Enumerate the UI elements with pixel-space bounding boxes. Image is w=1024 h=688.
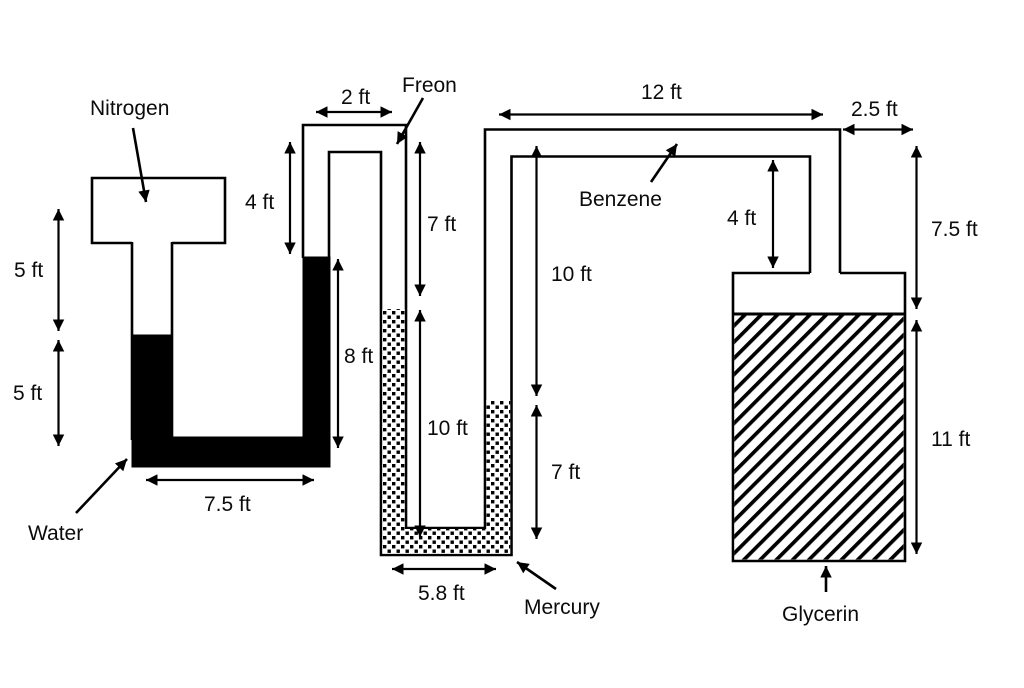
glycerin-fill xyxy=(734,314,903,560)
dim-glycerin-depth-label: 11 ft xyxy=(931,428,970,451)
freon-label: Freon xyxy=(402,74,457,97)
dim-freon-column-label: 7 ft xyxy=(427,213,456,236)
dim-benzene-pipe-run-label: 12 ft xyxy=(641,81,682,104)
dim-water-right-column-label: 8 ft xyxy=(344,345,373,368)
dim-pipe-to-glycerin-surface-label: 7.5 ft xyxy=(931,218,978,241)
mercury-pointer-arrow xyxy=(517,562,556,589)
nitrogen-pointer-arrow xyxy=(133,128,146,202)
nitrogen-label: Nitrogen xyxy=(90,97,169,120)
water-label: Water xyxy=(28,522,83,545)
diagram-svg: Nitrogen Water Freon Mercury Benzene Gly… xyxy=(0,0,1024,688)
water-fill xyxy=(132,257,330,467)
dim-benzene-lower-column-label: 7 ft xyxy=(551,461,580,484)
benzene-label: Benzene xyxy=(579,188,662,211)
freon-pointer-arrow xyxy=(397,98,423,144)
dim-tank-neck-label: 4 ft xyxy=(727,207,756,230)
dim-riser-label: 4 ft xyxy=(245,191,274,214)
dim-benzene-upper-column-label: 10 ft xyxy=(551,263,592,286)
dim-inverted-u-width-label: 2 ft xyxy=(341,86,370,109)
water-pointer-arrow xyxy=(76,459,127,513)
dim-nitrogen-column-label: 5 ft xyxy=(14,259,43,282)
dim-mercury-u-width-label: 5.8 ft xyxy=(418,582,465,605)
nitrogen-tank-outline xyxy=(92,178,225,243)
dim-mercury-left-column-label: 10 ft xyxy=(427,417,468,440)
dim-tank-offset-label: 2.5 ft xyxy=(851,98,898,121)
dim-water-u-width-label: 7.5 ft xyxy=(204,493,251,516)
manometer-diagram: Nitrogen Water Freon Mercury Benzene Gly… xyxy=(0,0,1024,688)
glycerin-label: Glycerin xyxy=(782,603,859,626)
dim-water-depth-label: 5 ft xyxy=(13,382,42,405)
mercury-label: Mercury xyxy=(524,596,600,619)
benzene-pointer-arrow xyxy=(651,144,677,182)
